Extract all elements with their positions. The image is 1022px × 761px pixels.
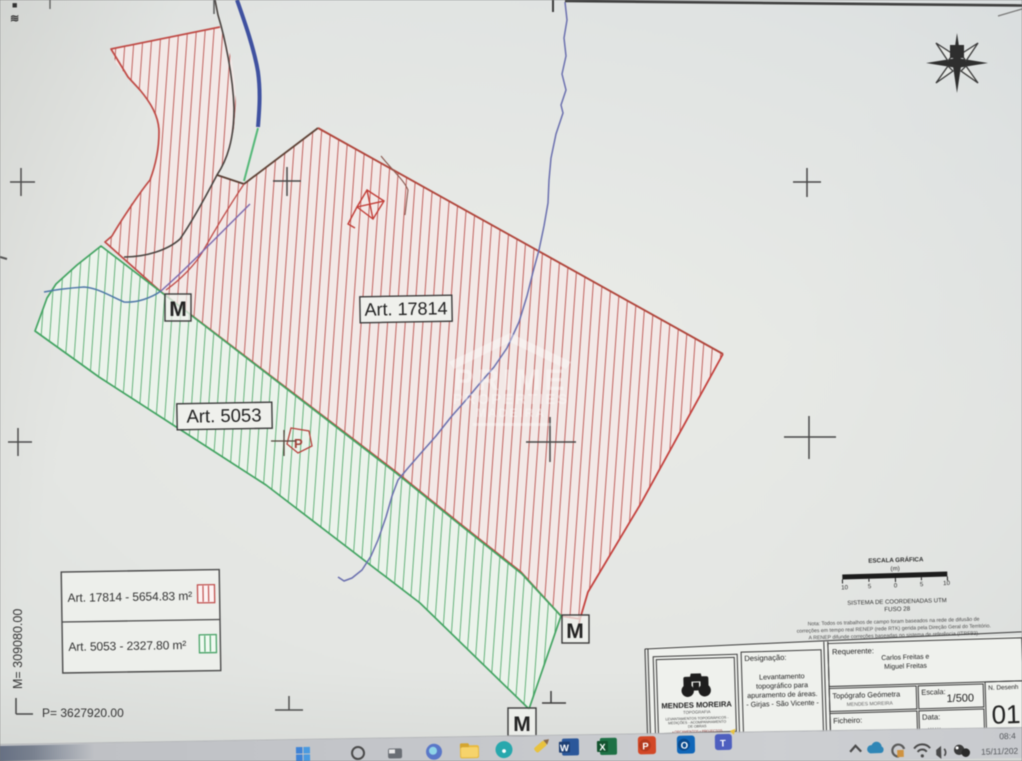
svg-text:5: 5 <box>920 581 924 588</box>
svg-text:■: ■ <box>12 0 17 10</box>
svg-text:M: M <box>169 298 187 321</box>
svg-text:0: 0 <box>894 582 898 589</box>
svg-text:Designação:: Designação: <box>744 653 786 663</box>
svg-text:10: 10 <box>943 580 951 587</box>
svg-text:Art. 5053 - 2327.80 m²: Art. 5053 - 2327.80 m² <box>68 638 186 654</box>
svg-text:Escala:: Escala: <box>921 687 946 697</box>
svg-text:M= 309080.00: M= 309080.00 <box>11 609 25 689</box>
svg-text:Carlos Freitas e: Carlos Freitas e <box>881 654 929 662</box>
svg-text:5: 5 <box>868 583 872 590</box>
svg-text:Miguel Freitas: Miguel Freitas <box>884 663 927 671</box>
svg-text:(m): (m) <box>890 565 899 572</box>
svg-text:10: 10 <box>841 584 849 591</box>
svg-text:TOPOGRAFIA: TOPOGRAFIA <box>683 709 711 715</box>
svg-text:M: M <box>566 620 584 643</box>
svg-text:P= 3627920.00: P= 3627920.00 <box>42 706 124 720</box>
svg-text:P: P <box>294 436 303 451</box>
svg-text:Data:: Data: <box>922 712 940 722</box>
svg-text:M: M <box>513 713 531 736</box>
svg-text:1/500: 1/500 <box>946 692 974 705</box>
svg-text:Art. 17814 - 5654.83 m²: Art. 17814 - 5654.83 m² <box>68 589 193 605</box>
svg-text:Ficheiro:: Ficheiro: <box>833 716 862 726</box>
svg-text:Art. 17814: Art. 17814 <box>364 298 447 319</box>
svg-text:Requerente:: Requerente: <box>832 646 874 656</box>
svg-text:ESCALA GRÁFICA: ESCALA GRÁFICA <box>868 556 924 565</box>
svg-text:DE OBRAS: DE OBRAS <box>688 724 707 729</box>
svg-text:N. Desenh: N. Desenh <box>988 684 1019 692</box>
svg-text:01: 01 <box>991 699 1021 730</box>
svg-text:Art. 5053: Art. 5053 <box>186 404 261 426</box>
svg-text:FUSO 28: FUSO 28 <box>884 606 911 614</box>
svg-text:≋: ≋ <box>10 13 19 25</box>
svg-text:MADEIRA: MADEIRA <box>476 406 546 420</box>
